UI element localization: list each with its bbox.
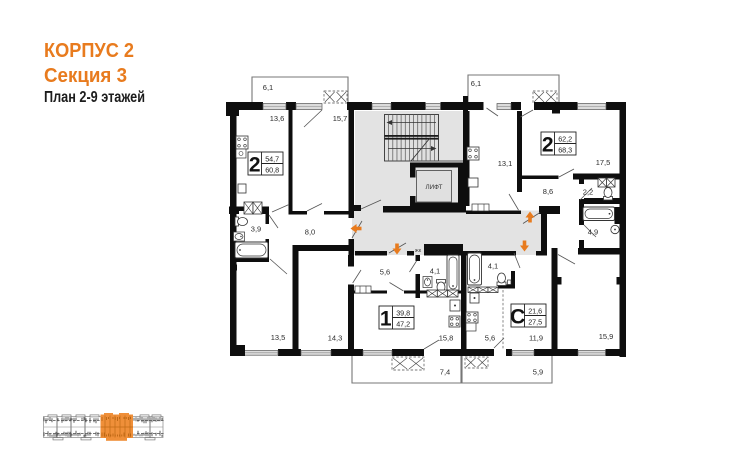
svg-text:5,9: 5,9	[533, 368, 543, 377]
svg-text:15,8: 15,8	[439, 334, 454, 343]
svg-text:60,8: 60,8	[265, 165, 279, 174]
svg-text:4,1: 4,1	[488, 262, 498, 271]
svg-text:68,3: 68,3	[558, 145, 572, 154]
svg-text:54,7: 54,7	[265, 154, 279, 163]
svg-text:С: С	[510, 306, 525, 329]
svg-text:8,0: 8,0	[305, 228, 315, 237]
svg-text:5,6: 5,6	[380, 268, 390, 277]
svg-text:27,5: 27,5	[528, 317, 542, 326]
svg-text:14,3: 14,3	[328, 334, 343, 343]
svg-text:2: 2	[542, 134, 554, 157]
svg-text:4,9: 4,9	[588, 228, 598, 237]
svg-text:План 2-9 этажей: План 2-9 этажей	[44, 89, 145, 106]
svg-text:3,9: 3,9	[251, 225, 261, 234]
svg-text:13,5: 13,5	[271, 333, 286, 342]
svg-text:КОРПУС 2: КОРПУС 2	[44, 40, 134, 62]
svg-text:ЖК: ЖК	[415, 248, 422, 253]
svg-text:21,6: 21,6	[528, 306, 542, 315]
svg-text:39,8: 39,8	[396, 308, 410, 317]
svg-text:5,6: 5,6	[485, 334, 495, 343]
svg-text:62,2: 62,2	[558, 134, 572, 143]
svg-text:Секция 3: Секция 3	[44, 65, 127, 87]
svg-text:6,1: 6,1	[263, 83, 273, 92]
svg-text:15,9: 15,9	[599, 332, 614, 341]
svg-text:13,1: 13,1	[498, 159, 513, 168]
svg-text:8,6: 8,6	[543, 187, 553, 196]
svg-text:ЛИФТ: ЛИФТ	[426, 184, 443, 191]
svg-text:47,2: 47,2	[396, 319, 410, 328]
svg-text:2,2: 2,2	[583, 187, 593, 196]
svg-text:1: 1	[380, 308, 392, 331]
svg-text:6,1: 6,1	[471, 79, 481, 88]
svg-text:7,4: 7,4	[440, 368, 450, 377]
svg-text:13,6: 13,6	[270, 114, 285, 123]
svg-text:11,9: 11,9	[529, 334, 543, 343]
svg-text:4,1: 4,1	[430, 267, 440, 276]
svg-text:17,5: 17,5	[596, 158, 611, 167]
svg-text:15,7: 15,7	[333, 114, 348, 123]
svg-text:2: 2	[249, 154, 261, 177]
